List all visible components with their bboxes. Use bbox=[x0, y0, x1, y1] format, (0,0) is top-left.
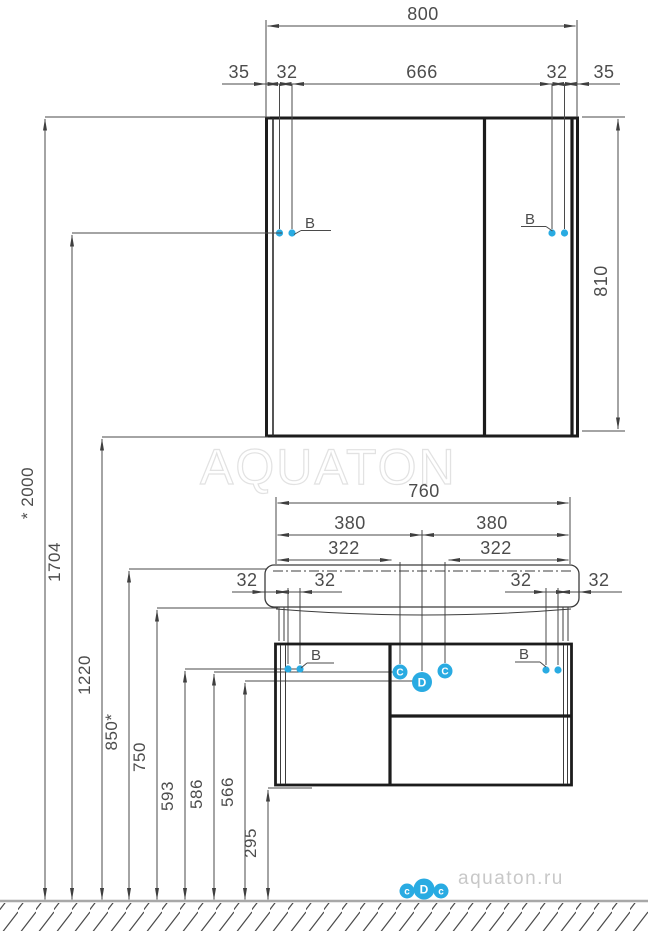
left-dimension-stack: * 2000 1704 1220 850* 750 593 586 566 29… bbox=[18, 117, 413, 901]
dim-35-left-text: 35 bbox=[228, 62, 249, 82]
dim-800-text: 800 bbox=[407, 4, 439, 24]
site-watermark: aquaton.ru bbox=[458, 868, 564, 889]
hinge-dot bbox=[288, 229, 295, 236]
dim-380-left-text: 380 bbox=[334, 513, 366, 533]
hinge-dot bbox=[554, 666, 561, 673]
dim-32-right-text: 32 bbox=[546, 62, 567, 82]
dim-total-width: 800 bbox=[266, 4, 577, 117]
dim-760-text: 760 bbox=[408, 481, 440, 501]
furniture-dimension-drawing: AQUATON 800 35 32 666 3 bbox=[0, 0, 648, 931]
dim-850-text: 850* bbox=[102, 714, 121, 751]
dim-32-a-text: 32 bbox=[236, 570, 257, 590]
dim-750-text: 750 bbox=[130, 742, 149, 772]
hinge-dot bbox=[542, 666, 549, 673]
footer-c-letter: c bbox=[404, 887, 410, 898]
mirror-cabinet bbox=[267, 118, 578, 436]
dim-593-text: 593 bbox=[158, 781, 177, 811]
dim-1704-text: 1704 bbox=[45, 542, 64, 582]
dim-666-text: 666 bbox=[406, 62, 438, 82]
hinge-label-b: B bbox=[311, 647, 321, 664]
dim-top-subdivisions: 35 32 666 32 35 bbox=[222, 62, 620, 229]
dim-566-text: 566 bbox=[218, 777, 237, 807]
vanity-dimensions: 760 380 380 322 322 32 32 32 32 bbox=[232, 481, 622, 671]
dim-380-right-text: 380 bbox=[476, 513, 508, 533]
hinge-dot bbox=[561, 229, 568, 236]
dim-322-left-text: 322 bbox=[328, 538, 360, 558]
footer-c-letter: c bbox=[438, 887, 444, 898]
mirror-hinge-markers: B B bbox=[276, 211, 568, 237]
hinge-label-b: B bbox=[525, 211, 535, 228]
dim-32-c-text: 32 bbox=[510, 570, 531, 590]
dim-32-d-text: 32 bbox=[588, 570, 609, 590]
ground bbox=[0, 901, 648, 931]
dim-32-b-text: 32 bbox=[314, 570, 335, 590]
footer-markers: aquaton.ru c c D bbox=[400, 868, 564, 900]
footer-d-letter: D bbox=[420, 883, 429, 897]
hinge-label-b: B bbox=[305, 215, 315, 232]
dim-322-right-text: 322 bbox=[480, 538, 512, 558]
marker-c-letter: C bbox=[396, 668, 403, 679]
technical-drawing-page: AQUATON 800 35 32 666 3 bbox=[0, 0, 648, 931]
dim-810-text: 810 bbox=[591, 265, 611, 297]
dim-295-text: 295 bbox=[241, 828, 260, 858]
dim-35-right-text: 35 bbox=[593, 62, 614, 82]
marker-c-letter: C bbox=[441, 667, 448, 678]
vanity-cabinet bbox=[276, 607, 572, 785]
vanity-hinge-markers: B B bbox=[284, 646, 561, 674]
dim-32-left-text: 32 bbox=[276, 62, 297, 82]
ground-hatching bbox=[0, 903, 648, 931]
marker-d-letter: D bbox=[418, 676, 427, 690]
dim-1220-text: 1220 bbox=[75, 655, 94, 695]
dim-2000-text: * 2000 bbox=[18, 467, 37, 519]
hinge-dot bbox=[284, 665, 291, 672]
dim-mirror-height: 810 bbox=[582, 117, 625, 431]
basin-underside-curve bbox=[276, 609, 571, 615]
hinge-label-b: B bbox=[519, 646, 529, 663]
dim-586-text: 586 bbox=[187, 779, 206, 809]
mirror-cabinet-outline bbox=[267, 118, 578, 436]
